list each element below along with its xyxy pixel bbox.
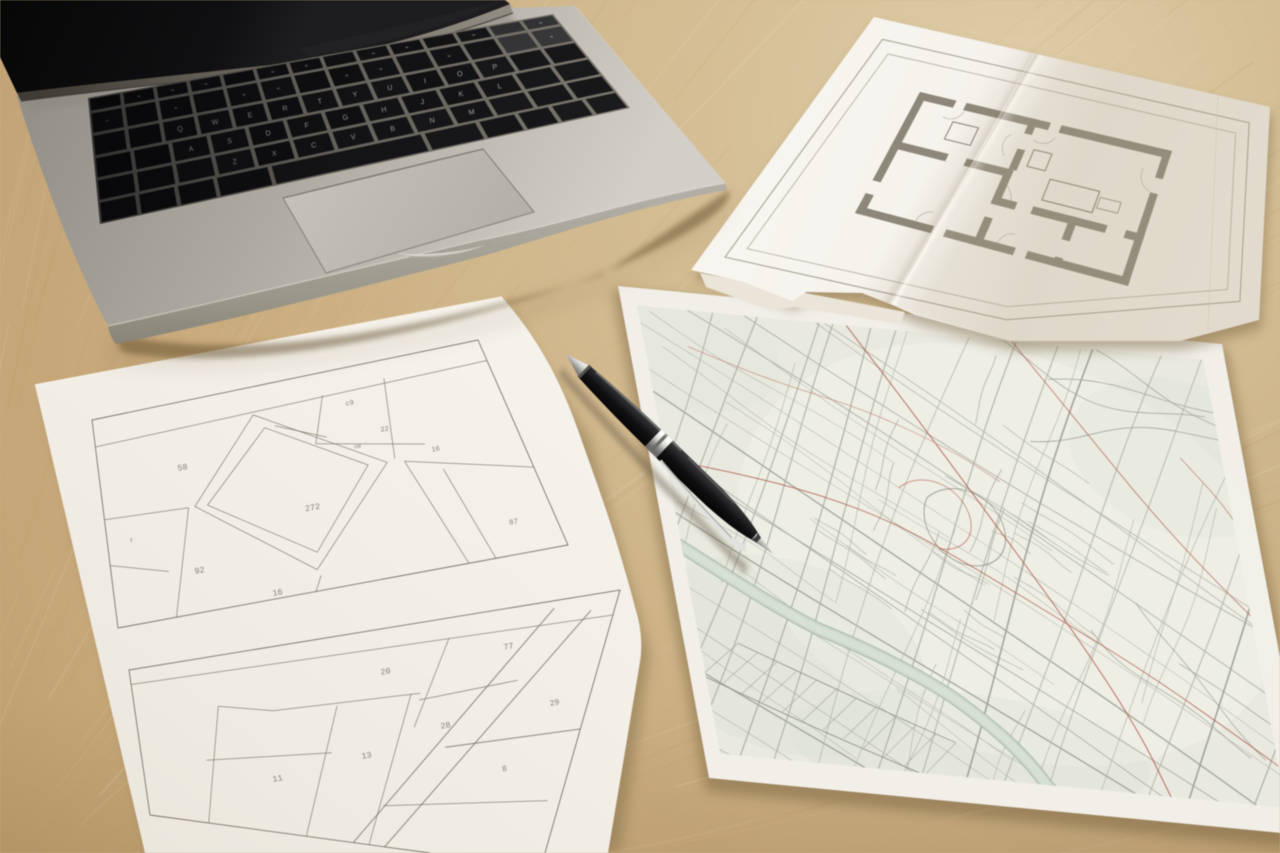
svg-text:13: 13 [361, 750, 373, 762]
svg-text:c9: c9 [345, 399, 355, 408]
svg-text:28: 28 [440, 720, 452, 732]
svg-text:16: 16 [272, 587, 284, 599]
svg-text:77: 77 [503, 641, 515, 653]
svg-text:29: 29 [549, 698, 560, 709]
svg-text:11: 11 [272, 773, 284, 785]
svg-text:20: 20 [380, 666, 392, 678]
svg-text:87: 87 [509, 518, 519, 528]
svg-text:92: 92 [194, 565, 206, 577]
svg-text:58: 58 [177, 462, 189, 474]
svg-text:16: 16 [431, 445, 441, 454]
svg-text:22: 22 [380, 425, 390, 434]
